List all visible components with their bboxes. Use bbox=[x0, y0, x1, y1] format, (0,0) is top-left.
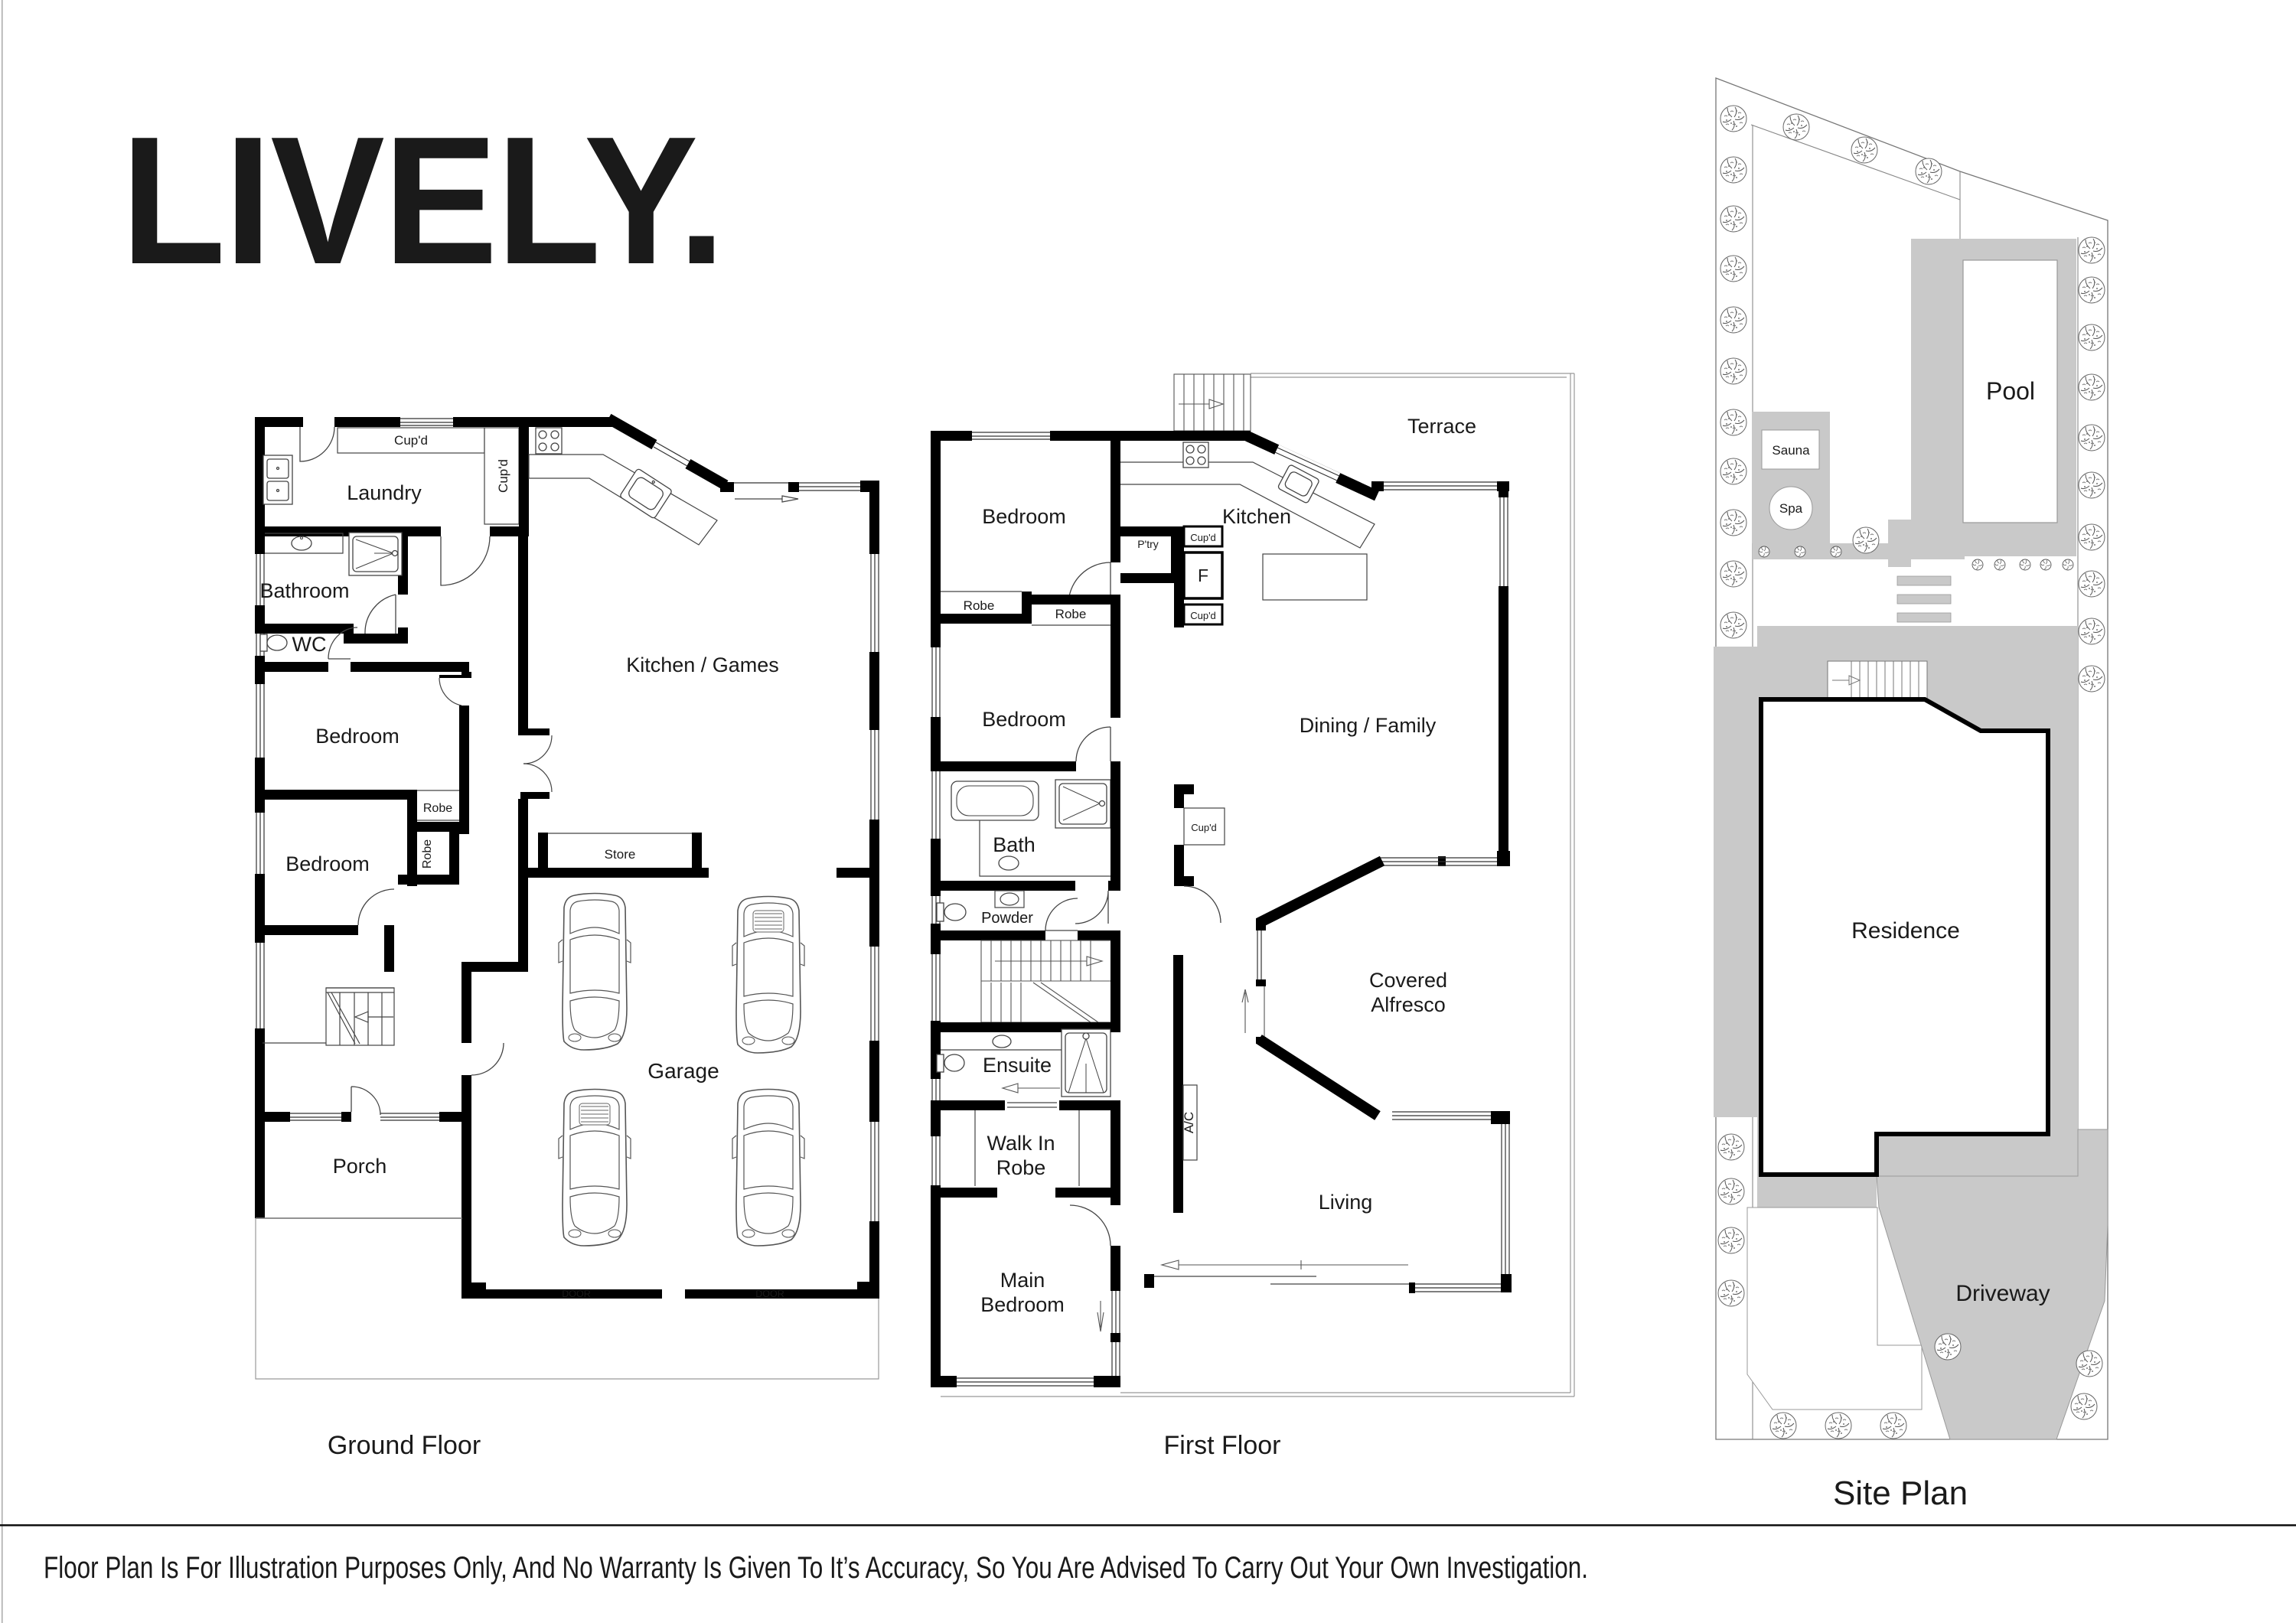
svg-text:Spa: Spa bbox=[1779, 501, 1803, 516]
svg-text:Covered: Covered bbox=[1369, 969, 1447, 992]
svg-text:Cup'd: Cup'd bbox=[496, 459, 510, 493]
svg-text:Pool: Pool bbox=[1986, 377, 2035, 405]
svg-text:Robe: Robe bbox=[996, 1156, 1046, 1179]
svg-text:F: F bbox=[1198, 565, 1208, 585]
svg-text:Dining / Family: Dining / Family bbox=[1300, 714, 1437, 737]
svg-text:Robe: Robe bbox=[421, 839, 434, 869]
svg-text:Residence: Residence bbox=[1851, 918, 1960, 943]
svg-text:Powder: Powder bbox=[981, 910, 1033, 927]
svg-text:WC: WC bbox=[292, 633, 327, 656]
svg-text:Cup'd: Cup'd bbox=[1191, 822, 1217, 833]
svg-text:Garage: Garage bbox=[647, 1059, 719, 1083]
svg-text:Cup'd: Cup'd bbox=[1190, 532, 1216, 543]
svg-text:Sauna: Sauna bbox=[1772, 443, 1810, 458]
svg-text:Bathroom: Bathroom bbox=[259, 579, 349, 602]
svg-text:Robe: Robe bbox=[964, 598, 995, 613]
svg-text:Driveway: Driveway bbox=[1955, 1281, 2050, 1306]
svg-text:Alfresco: Alfresco bbox=[1371, 993, 1446, 1016]
svg-text:Kitchen / Games: Kitchen / Games bbox=[626, 653, 779, 676]
svg-text:Bedroom: Bedroom bbox=[285, 852, 370, 875]
svg-text:Bedroom: Bedroom bbox=[315, 725, 400, 748]
svg-text:Ensuite: Ensuite bbox=[983, 1054, 1052, 1077]
svg-text:LIVELY.: LIVELY. bbox=[121, 99, 724, 302]
svg-text:Ground Floor: Ground Floor bbox=[328, 1431, 481, 1460]
svg-text:Kitchen: Kitchen bbox=[1222, 505, 1291, 528]
svg-text:DOOR: DOOR bbox=[755, 1289, 784, 1299]
svg-text:Floor Plan Is For Illustration: Floor Plan Is For Illustration Purposes … bbox=[44, 1551, 1588, 1585]
svg-text:Main: Main bbox=[1000, 1269, 1045, 1292]
svg-text:Cup'd: Cup'd bbox=[1190, 610, 1216, 621]
svg-text:Cup'd: Cup'd bbox=[394, 433, 428, 448]
svg-text:Living: Living bbox=[1319, 1191, 1373, 1214]
svg-text:Robe: Robe bbox=[423, 802, 452, 815]
svg-text:Terrace: Terrace bbox=[1407, 415, 1476, 438]
svg-text:Walk In: Walk In bbox=[987, 1132, 1055, 1155]
svg-text:DOOR: DOOR bbox=[562, 1289, 591, 1299]
svg-text:Robe: Robe bbox=[1055, 607, 1087, 621]
svg-text:Porch: Porch bbox=[333, 1155, 387, 1178]
svg-text:Bedroom: Bedroom bbox=[982, 505, 1066, 528]
svg-text:Bedroom: Bedroom bbox=[980, 1293, 1065, 1316]
svg-text:P'try: P'try bbox=[1137, 538, 1159, 550]
svg-text:Bath: Bath bbox=[993, 833, 1035, 856]
svg-text:Store: Store bbox=[605, 847, 636, 862]
svg-text:Bedroom: Bedroom bbox=[982, 708, 1066, 731]
svg-text:Site Plan: Site Plan bbox=[1833, 1475, 1968, 1512]
svg-text:First Floor: First Floor bbox=[1164, 1431, 1281, 1460]
svg-text:Laundry: Laundry bbox=[347, 481, 422, 504]
svg-text:A/C: A/C bbox=[1182, 1112, 1196, 1133]
